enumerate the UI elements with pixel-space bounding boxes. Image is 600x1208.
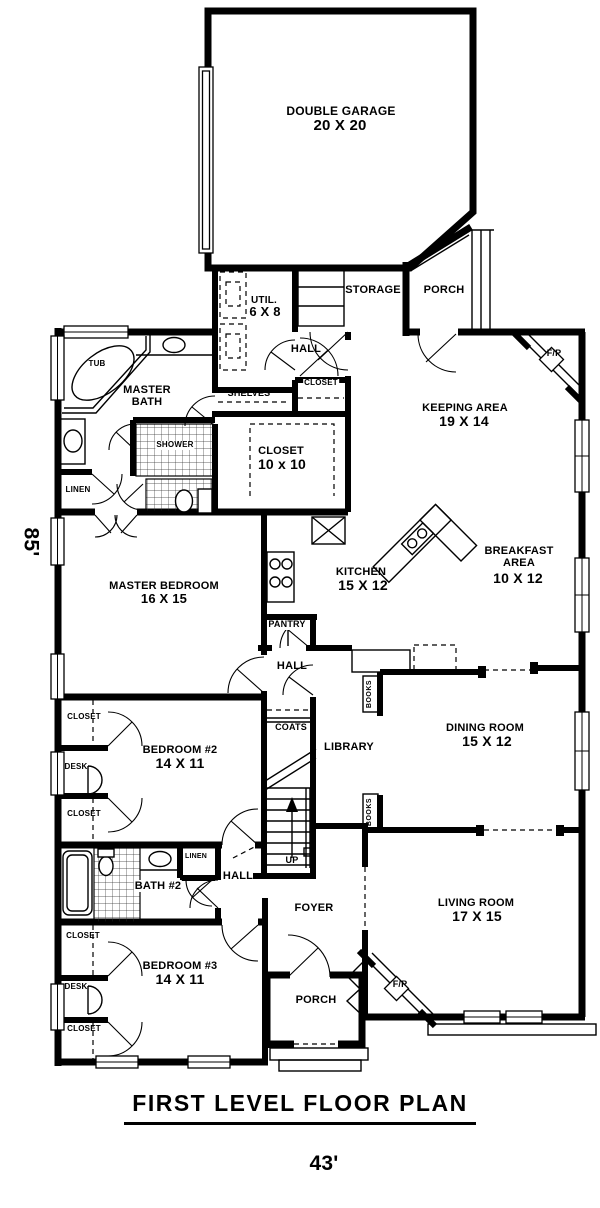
fireplace-label-living: F/P [393,980,408,990]
plan-title-row: FIRST LEVEL FLOOR PLAN [0,1090,600,1125]
dimension-depth: 85' [19,528,42,557]
closet-label-bed3-top: CLOSET [66,932,100,941]
room-size-dining: 15 X 12 [462,734,512,749]
room-size-bedroom2: 14 X 11 [156,756,205,771]
room-label-coats: COATS [275,723,307,733]
room-size-breakfast: 10 X 12 [493,571,543,586]
room-label-closet-rear: CLOSET [303,379,339,388]
toilets [98,489,212,876]
room-size-master-bedroom: 16 X 15 [141,592,187,606]
desk-label-bed2: DESK [64,763,87,772]
room-label-shelves: SHELVES [228,389,271,399]
closet-label-bed3-bottom: CLOSET [67,1025,101,1034]
room-label-linen-bath2: LINEN [184,853,208,861]
room-label-pantry: PANTRY [267,620,306,630]
room-size-kitchen: 15 X 12 [338,578,388,593]
room-size-util: 6 X 8 [249,305,280,319]
room-label-bath2: BATH #2 [134,880,182,892]
room-label-foyer: FOYER [295,902,334,914]
room-label-hall-mid: HALL [277,660,307,672]
room-size-living: 17 X 15 [452,909,502,924]
room-label-linen-master: LINEN [66,486,91,495]
floor-plan-page: DOUBLE GARAGE 20 X 20 UTIL. 6 X 8 STORAG… [0,0,600,1208]
fixture-label-tub: TUB [88,360,105,369]
shelf-label-books-top: BOOKS [366,680,374,708]
fixture-label-shower: SHOWER [155,441,194,450]
room-label-hall-rear: HALL [291,343,321,355]
desk-label-bed3: DESK [64,983,87,992]
room-label-storage: STORAGE [345,284,401,296]
closet-label-bed2-top: CLOSET [67,713,101,722]
room-label-porch-rear: PORCH [424,284,465,296]
room-size-closet10: 10 x 10 [258,457,306,472]
room-label-library: LIBRARY [324,741,374,753]
room-label-porch-front: PORCH [296,994,337,1006]
stairs-label-up: UP [286,856,299,866]
room-label-master-bath: MASTER BATH [115,384,179,408]
room-label-hall-front: HALL [223,870,253,882]
shelf-label-books-bottom: BOOKS [366,798,374,826]
dimension-width: 43' [310,1152,339,1175]
plan-title: FIRST LEVEL FLOOR PLAN [124,1090,475,1125]
room-size-garage: 20 X 20 [313,118,366,135]
closet-label-bed2-bottom: CLOSET [67,810,101,819]
room-label-breakfast: BREAKFAST AREA [472,545,566,569]
room-size-keeping: 19 X 14 [439,414,489,429]
room-size-bedroom3: 14 X 11 [156,972,205,987]
fireplace-label-keeping: F/P [547,349,562,359]
